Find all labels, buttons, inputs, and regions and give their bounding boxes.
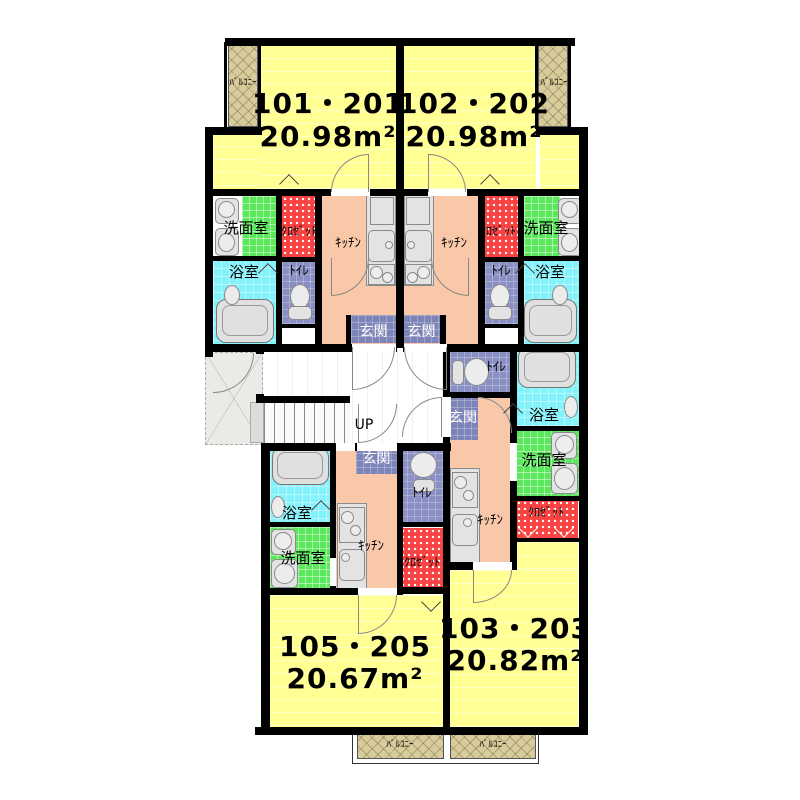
stove-burner [454, 476, 467, 489]
wall [397, 587, 447, 594]
wall [485, 324, 518, 328]
label-closet-101: ｸﾛｾﾞｯﾄ [268, 224, 330, 238]
stove-burner [382, 272, 393, 283]
label-washroom-103: 洗面室 [512, 452, 576, 468]
unit-102-area: 20.98m² [382, 122, 566, 152]
label-bathroom-105: 浴室 [271, 505, 323, 521]
wall [270, 522, 330, 527]
label-balcony-top-right: ﾊﾞﾙｺﾆｰ [524, 77, 584, 89]
label-bathroom-102: 浴室 [524, 264, 576, 280]
wall [516, 538, 579, 542]
label-toilet-101: ﾄｲﾚ [279, 265, 319, 278]
staircase [264, 402, 350, 443]
wall [261, 443, 451, 451]
label-balcony-bottom-right: ﾊﾞﾙｺﾆｰ [463, 739, 523, 751]
sink-bowl [274, 532, 292, 550]
wall [282, 324, 315, 328]
floor-plan: 101・201 20.98m² 102・202 20.98m² 103・203 … [0, 0, 800, 800]
label-kitchen-103: ｷｯﾁﾝ [464, 513, 516, 527]
stove-burner [341, 511, 354, 524]
washing-machine-drum [561, 201, 578, 218]
stove-burner [463, 490, 474, 501]
label-closet-103: ｸﾛｾﾞｯﾄ [513, 505, 579, 519]
faucet [407, 241, 415, 249]
toilet-tank [452, 360, 464, 385]
label-stairs-up: UP [347, 416, 381, 433]
label-balcony-top-left: ﾊﾞﾙｺﾆｰ [213, 77, 273, 89]
stair-landing [250, 402, 264, 443]
wall [213, 256, 276, 261]
wall [524, 256, 580, 261]
unit-105-number: 105・205 [263, 632, 447, 662]
label-kitchen-102: ｷｯﾁﾝ [428, 236, 480, 250]
toilet-tank [488, 306, 512, 320]
bathtub-inner [277, 452, 323, 479]
washing-machine-drum [218, 201, 235, 218]
bath-basin [552, 285, 568, 305]
wall [256, 345, 264, 354]
toilet-bowl [410, 452, 437, 478]
label-entrance-103: 玄関 [446, 410, 480, 426]
unit-103-area: 20.82m² [423, 646, 607, 676]
label-bathroom-101: 浴室 [218, 264, 270, 280]
label-entrance-105: 玄関 [355, 451, 398, 467]
bathtub-inner [529, 305, 572, 336]
kitchen-cabinet [370, 197, 394, 225]
room-living-103 [516, 542, 578, 570]
faucet [341, 553, 350, 562]
bathtub-inner [524, 352, 570, 382]
door-opening [358, 588, 397, 595]
wall [256, 394, 264, 403]
label-entrance-101: 玄関 [351, 324, 396, 340]
wall [258, 396, 350, 403]
label-toilet-102: ﾄｲﾚ [481, 265, 521, 278]
label-closet-105: ｸﾛｾﾞｯﾄ [393, 555, 451, 569]
wall [440, 315, 446, 345]
faucet [385, 241, 393, 249]
bath-basin [224, 285, 240, 305]
label-entrance-102: 玄関 [403, 324, 440, 340]
label-toilet-105: ﾄｲﾚ [402, 487, 442, 500]
label-washroom-105: 洗面室 [272, 550, 334, 566]
wall [282, 257, 315, 262]
wall [516, 426, 579, 431]
door-opening [336, 443, 355, 451]
stove-burner [407, 272, 418, 283]
label-kitchen-101: ｷｯﾁﾝ [322, 236, 374, 250]
bathtub-inner [222, 305, 268, 336]
label-balcony-bottom-left: ﾊﾞﾙｺﾆｰ [370, 739, 430, 751]
wall [400, 522, 447, 527]
unit-102-number: 102・202 [382, 89, 566, 119]
unit-103-number: 103・203 [423, 614, 607, 644]
washing-machine-drum [554, 467, 575, 490]
wall [255, 727, 585, 735]
label-bathroom-103: 浴室 [518, 407, 570, 423]
wall [485, 257, 518, 262]
door-opening [473, 562, 512, 570]
label-toilet-103: ﾄｲﾚ [477, 361, 515, 374]
door-opening [357, 443, 397, 451]
kitchen-cabinet [406, 197, 430, 225]
stove-burner [350, 525, 361, 536]
wall [516, 496, 579, 501]
wall [205, 127, 213, 357]
stove-burner [417, 266, 430, 279]
label-kitchen-105: ｷｯﾁﾝ [345, 539, 397, 553]
toilet-tank [288, 306, 312, 320]
wall [397, 446, 403, 593]
unit-105-area: 20.67m² [263, 664, 447, 694]
label-closet-102: ｸﾛｾﾞｯﾄ [467, 224, 529, 238]
